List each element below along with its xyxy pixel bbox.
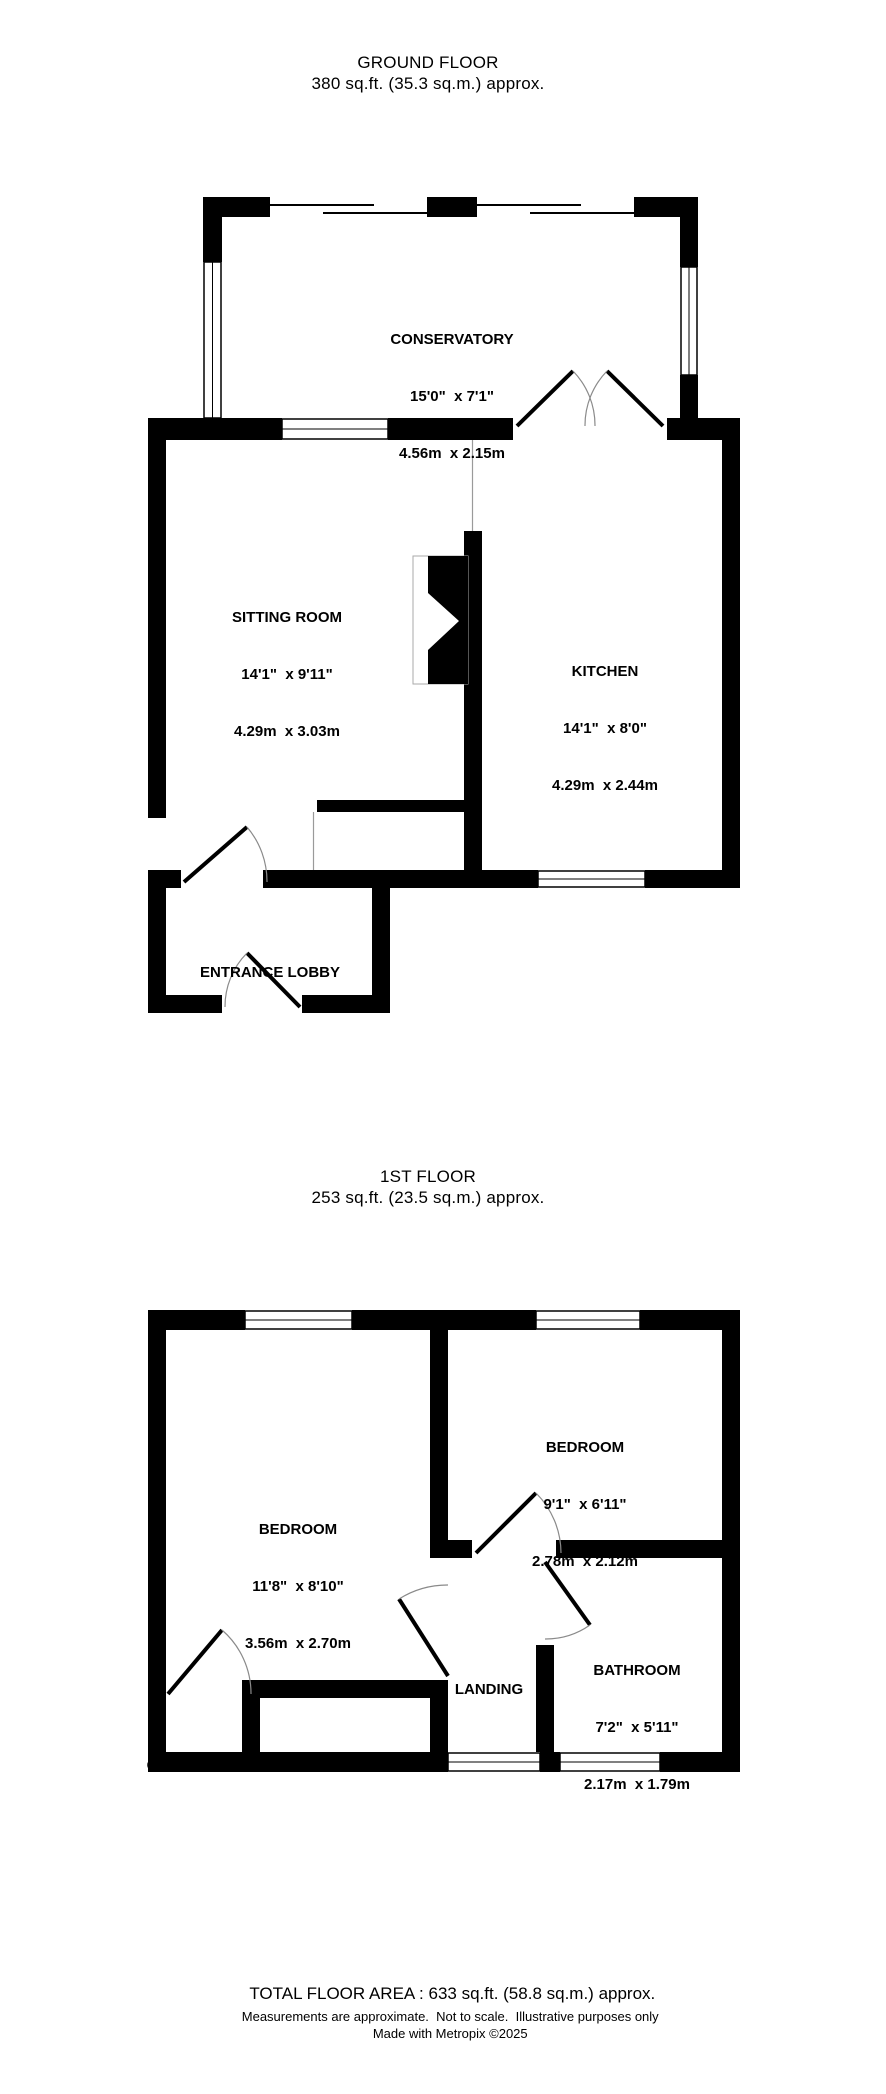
room-label-stairs-gf: STAIRS <box>369 828 423 923</box>
room-label-stairs-ff: STAIRS <box>318 1718 372 1813</box>
bedroom-left-door <box>399 1585 448 1676</box>
room-label-bathroom: BATHROOM 7'2" x 5'11" 2.17m x 1.79m <box>584 1623 690 1832</box>
ground-floor-title: GROUND FLOOR 380 sq.ft. (35.3 sq.m.) app… <box>312 52 545 94</box>
floorplan-page: CUPBOARD <box>0 0 886 2094</box>
metropix-credit: Made with Metropix ©2025 <box>358 2011 527 2056</box>
room-label-sitting-room: SITTING ROOM 14'1" x 9'11" 4.29m x 3.03m <box>232 570 342 779</box>
room-label-entrance-lobby: ENTRANCE LOBBY <box>200 925 340 1020</box>
lobby-door <box>184 827 267 882</box>
room-label-bedroom-left: BEDROOM 11'8" x 8'10" 3.56m x 2.70m <box>245 1482 351 1691</box>
room-label-landing: LANDING <box>455 1642 523 1737</box>
room-label-conservatory: CONSERVATORY 15'0" x 7'1" 4.56m x 2.15m <box>390 292 513 501</box>
room-label-kitchen: KITCHEN 14'1" x 8'0" 4.29m x 2.44m <box>552 624 658 833</box>
french-doors <box>517 371 663 426</box>
first-floor-doors <box>168 1493 590 1694</box>
fireplace <box>413 556 468 684</box>
cupboard-door <box>168 1630 251 1694</box>
first-floor-title: 1ST FLOOR 253 sq.ft. (23.5 sq.m.) approx… <box>312 1166 545 1208</box>
room-label-bedroom-right: BEDROOM 9'1" x 6'11" 2.78m x 2.12m <box>532 1400 638 1609</box>
